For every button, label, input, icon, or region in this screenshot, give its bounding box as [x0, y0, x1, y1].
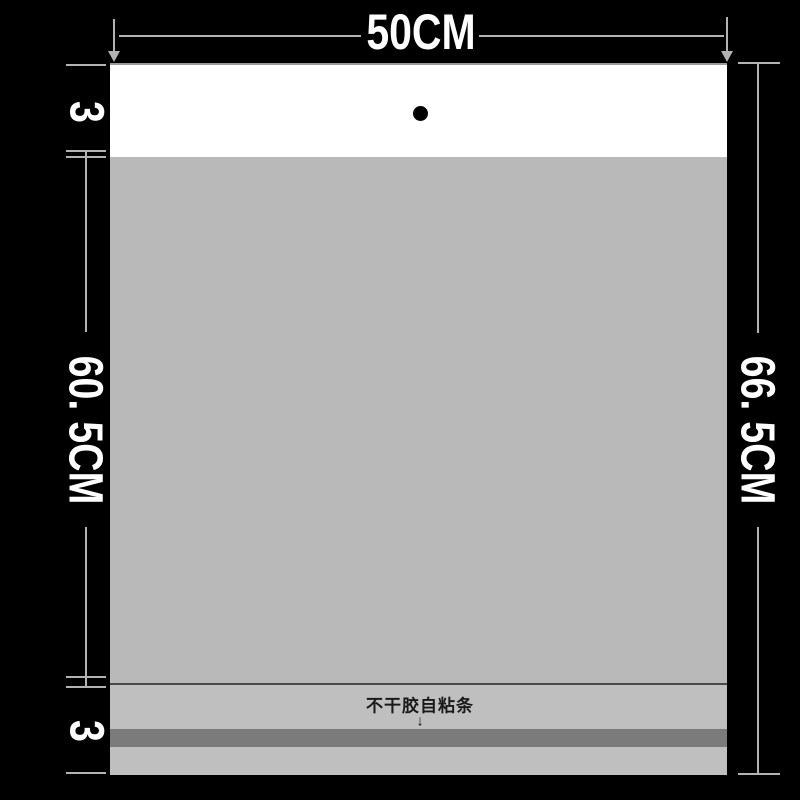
left-body-dimension-label: 60. 5CM	[58, 356, 113, 505]
dimension-tick	[738, 62, 780, 64]
arrowhead-top-left-icon	[108, 51, 120, 62]
left-bottom-flap-dimension-label: 3	[59, 720, 114, 742]
dimension-tick	[738, 773, 780, 775]
bag-body	[110, 157, 727, 683]
hang-hole	[413, 106, 428, 121]
dimension-tick	[66, 64, 106, 66]
dimension-line-right-lower	[757, 527, 759, 775]
dimension-line-left-upper	[85, 150, 87, 332]
dimension-line-top-left	[119, 35, 361, 37]
bag-top-flap	[110, 65, 727, 157]
down-arrow-icon: ↓	[416, 713, 424, 730]
diagram-canvas: 不干胶自粘条 ↓ 50CM 3 60. 5CM 3 66. 5CM	[0, 0, 800, 800]
adhesive-strip	[110, 729, 727, 747]
right-total-height-dimension-label: 66. 5CM	[730, 356, 785, 505]
dimension-line-right-upper	[757, 62, 759, 333]
dimension-line-top-right	[479, 35, 724, 37]
dimension-tick	[66, 772, 106, 774]
bag-outline	[110, 63, 727, 775]
dimension-line-left-lower	[85, 527, 87, 688]
top-width-dimension-label: 50CM	[366, 3, 475, 61]
arrowhead-top-right-icon	[721, 51, 733, 62]
left-top-flap-dimension-label: 3	[59, 101, 114, 123]
